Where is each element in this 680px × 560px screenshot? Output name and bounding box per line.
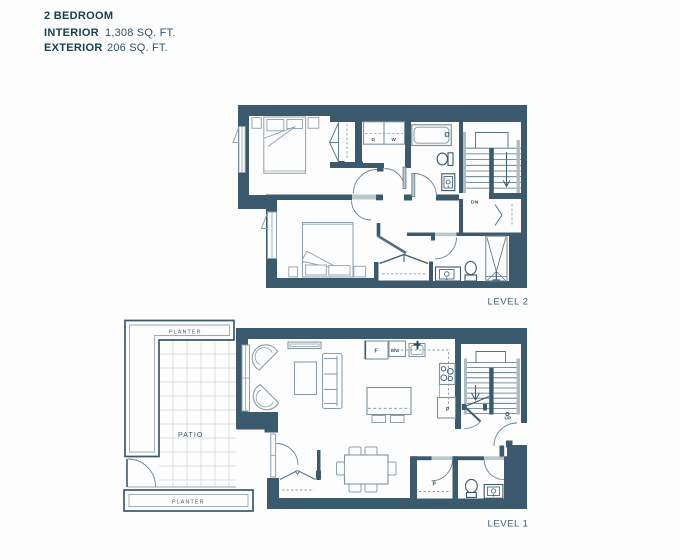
svg-text:DN: DN	[471, 200, 479, 206]
svg-text:PLANTER: PLANTER	[169, 330, 202, 336]
svg-text:PLANTER: PLANTER	[172, 500, 205, 506]
svg-text:F: F	[375, 349, 378, 355]
svg-text:EXTERIOR: EXTERIOR	[44, 42, 103, 54]
svg-text:UP: UP	[505, 416, 512, 421]
svg-text:LEVEL 2: LEVEL 2	[487, 297, 528, 308]
svg-text:W: W	[392, 137, 397, 142]
svg-text:LEVEL 1: LEVEL 1	[487, 519, 528, 530]
svg-text:D/W: D/W	[391, 348, 399, 353]
svg-text:PATIO: PATIO	[178, 432, 203, 439]
svg-text:206 SQ. FT.: 206 SQ. FT.	[107, 42, 168, 54]
svg-text:1,308 SQ. FT.: 1,308 SQ. FT.	[105, 27, 175, 39]
svg-text:INTERIOR: INTERIOR	[44, 27, 99, 39]
svg-text:2 BEDROOM: 2 BEDROOM	[44, 10, 113, 22]
